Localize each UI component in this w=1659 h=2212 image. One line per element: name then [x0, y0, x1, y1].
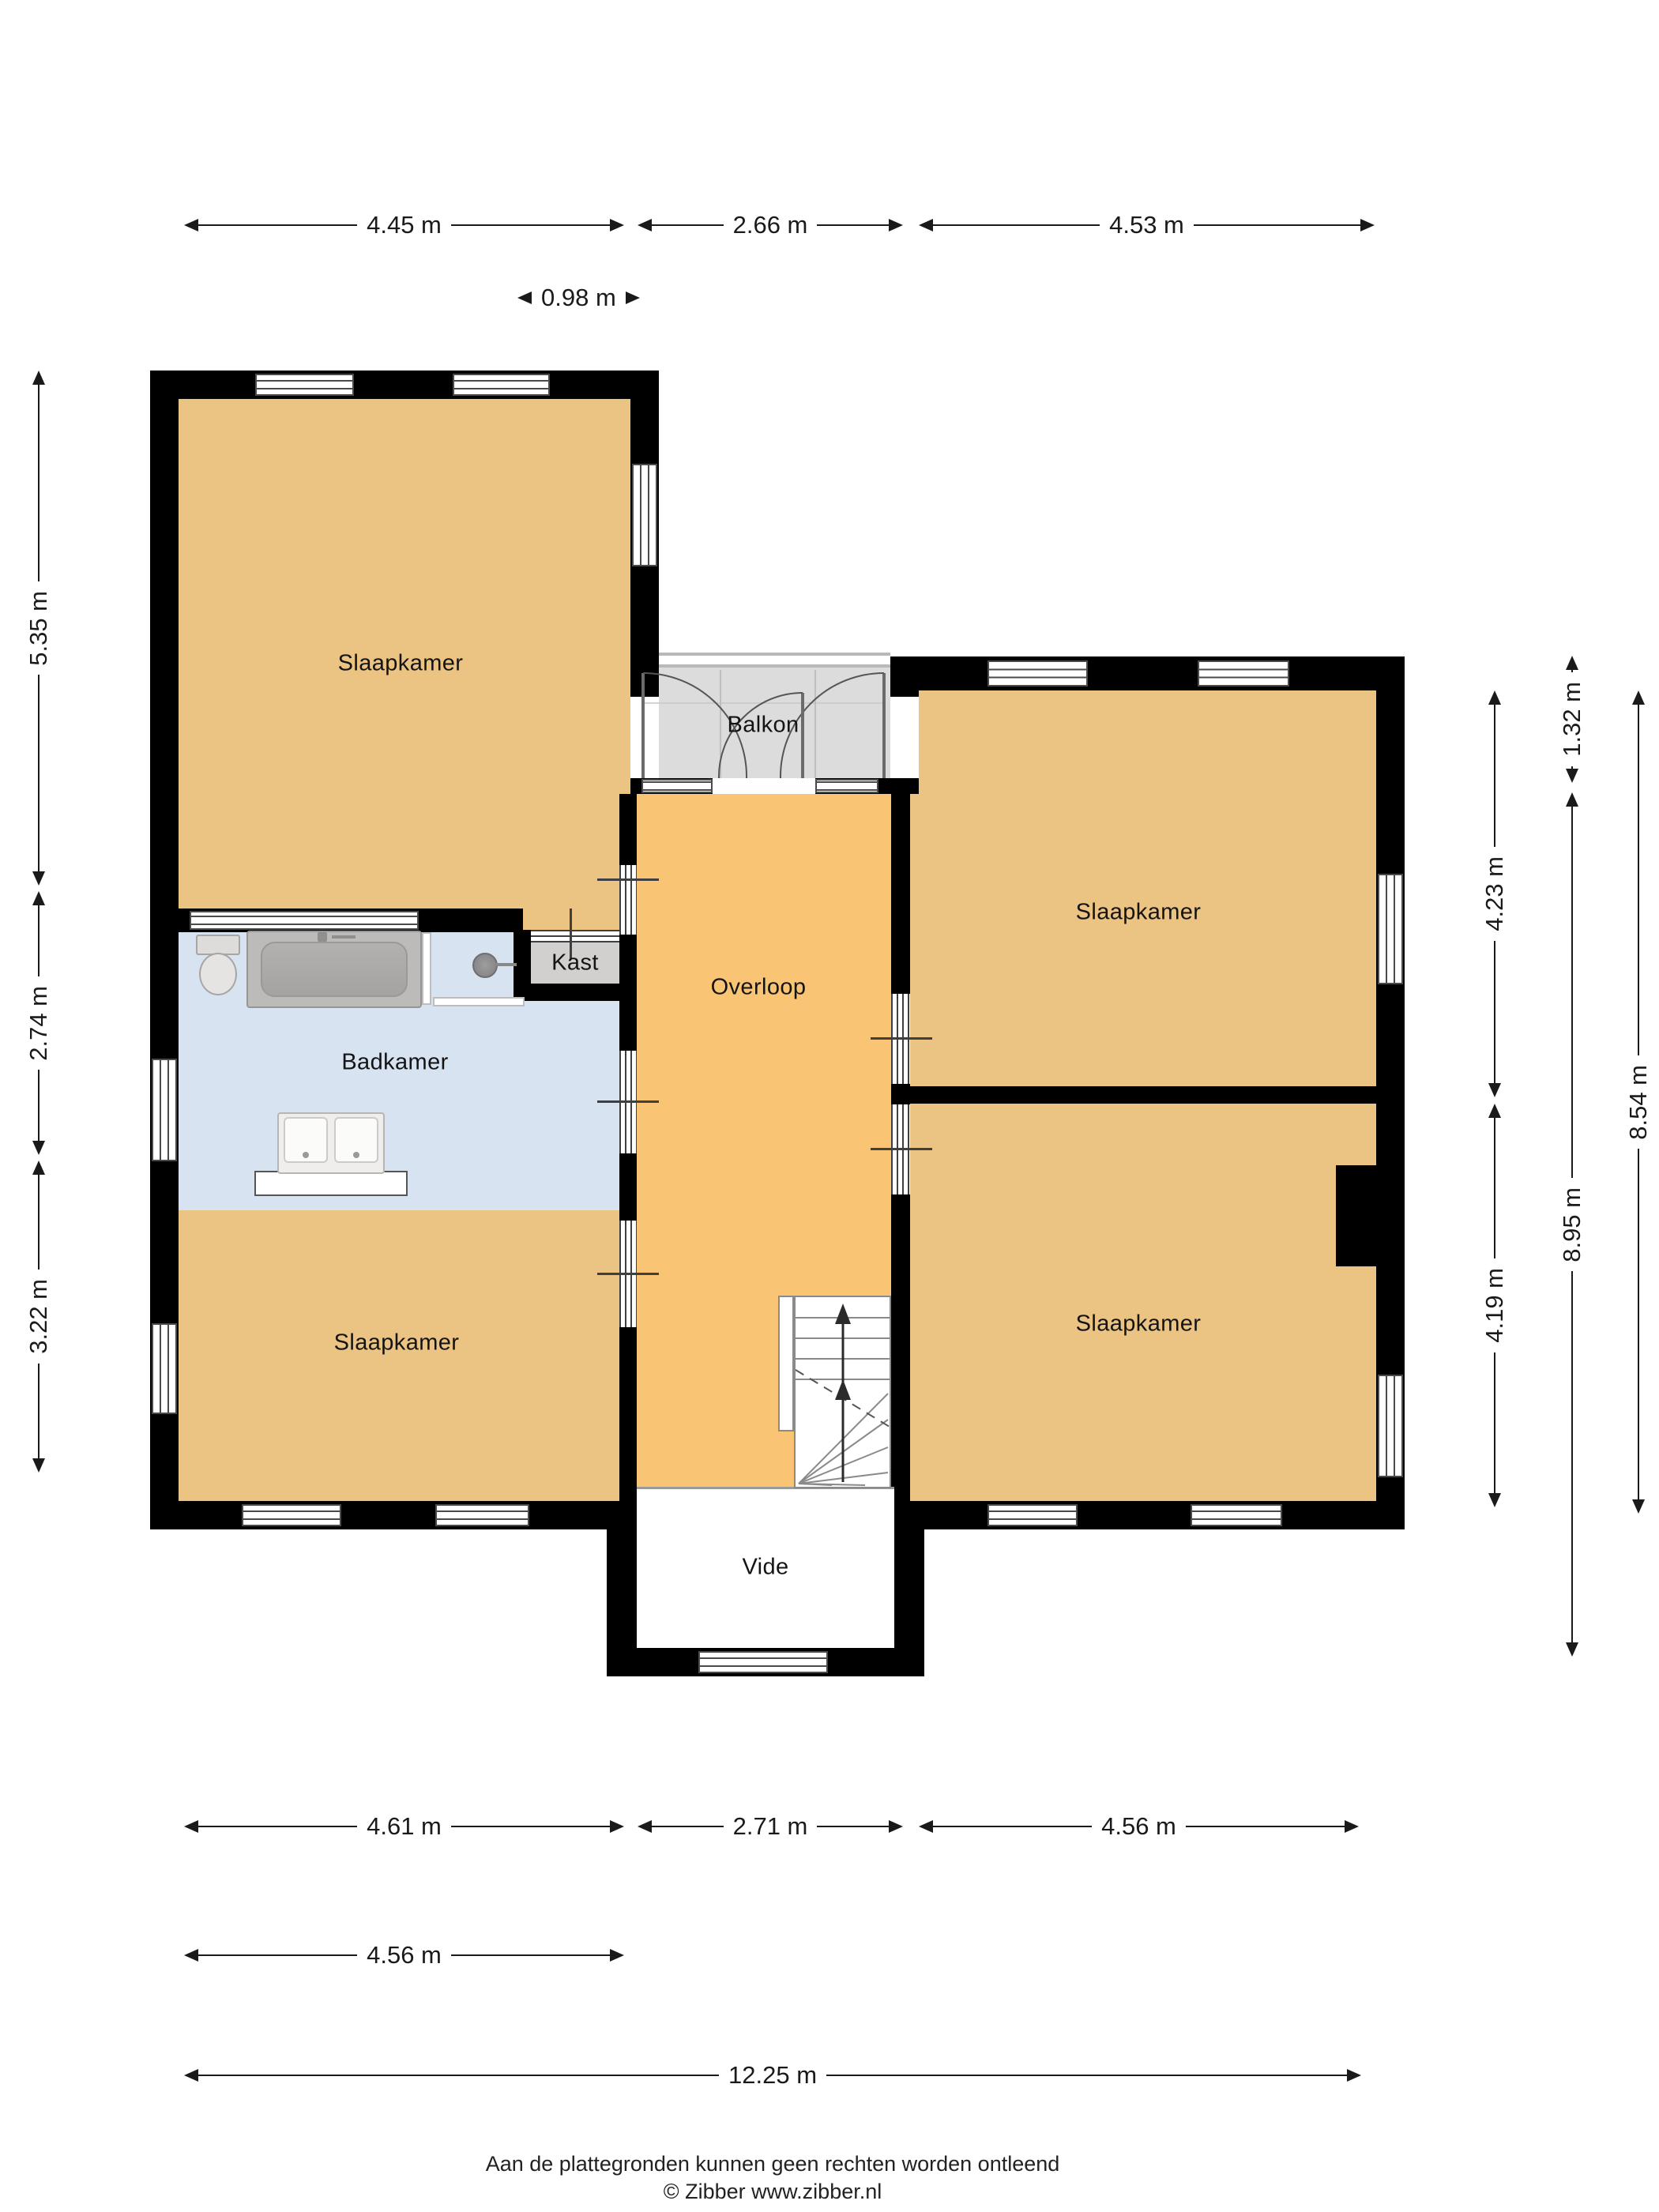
- bathtub-icon: [261, 942, 408, 997]
- arrow-icon: [1566, 1642, 1578, 1657]
- dimension-label: 4.19 m: [1480, 1258, 1509, 1352]
- window: [255, 374, 354, 396]
- arrow-icon: [1566, 656, 1578, 670]
- window: [152, 1323, 177, 1414]
- arrow-icon: [1488, 1104, 1501, 1118]
- arrow-icon: [889, 1820, 903, 1833]
- door-slaapkamer-topleft: [619, 865, 637, 935]
- arrow-icon: [32, 891, 45, 905]
- dimension: 4.61 m: [184, 1813, 624, 1840]
- dimension: 2.71 m: [638, 1813, 903, 1840]
- window: [190, 911, 419, 930]
- arrow-icon: [610, 219, 624, 231]
- room-slaapkamer-topright: [908, 690, 1376, 1104]
- arrow-icon: [1488, 1493, 1501, 1507]
- window: [1378, 874, 1403, 984]
- room-label: Slaapkamer: [1076, 900, 1202, 926]
- room-label: Kast: [551, 950, 599, 976]
- dimension-label: 4.56 m: [1092, 1812, 1186, 1841]
- arrow-icon: [610, 1820, 624, 1833]
- room-label: Slaapkamer: [334, 1330, 460, 1356]
- room-slaapkamer-bottomright: [908, 1104, 1376, 1501]
- arrow-icon: [32, 371, 45, 385]
- dimension-label: 8.54 m: [1624, 1055, 1653, 1149]
- window: [1198, 660, 1289, 687]
- arrow-icon: [32, 871, 45, 886]
- footer-copyright: © Zibber www.zibber.nl: [184, 2178, 1361, 2206]
- dimension: 1.32 m: [1559, 656, 1586, 783]
- door-kast: [531, 930, 619, 942]
- dimension: 5.35 m: [25, 371, 52, 886]
- arrow-icon: [32, 1141, 45, 1155]
- footer-disclaimer: Aan de plattegronden kunnen geen rechten…: [184, 2150, 1361, 2178]
- arrow-icon: [1632, 690, 1645, 705]
- window: [242, 1504, 341, 1526]
- arrow-icon: [638, 1820, 652, 1833]
- dimension-label: 12.25 m: [719, 2061, 826, 2090]
- wall: [513, 984, 637, 1001]
- dimension-label: 8.95 m: [1558, 1178, 1586, 1272]
- window: [698, 1651, 828, 1673]
- arrow-icon: [184, 1949, 198, 1962]
- dimension: 12.25 m: [184, 2062, 1361, 2089]
- arrow-icon: [517, 292, 532, 304]
- arrow-icon: [184, 1820, 198, 1833]
- arrow-icon: [1488, 1083, 1501, 1097]
- dimension: 4.56 m: [919, 1813, 1359, 1840]
- wall: [890, 656, 1405, 690]
- window: [435, 1504, 529, 1526]
- floorplan-page: Slaapkamer Balkon Slaapkamer Kast Badkam…: [0, 0, 1659, 2212]
- stairs-icon: [796, 1297, 890, 1487]
- shower-icon: [472, 953, 498, 978]
- arrow-icon: [1347, 2069, 1361, 2082]
- dimension: 8.54 m: [1625, 690, 1652, 1514]
- arrow-icon: [1360, 219, 1375, 231]
- dimension-label: 4.45 m: [357, 211, 451, 239]
- dimension: 4.53 m: [919, 212, 1375, 239]
- door-swing-tick: [871, 1037, 932, 1040]
- staircase: [794, 1296, 891, 1488]
- washbasin-counter: [254, 1171, 408, 1196]
- dimension-label: 2.74 m: [24, 976, 53, 1070]
- arrow-icon: [919, 1820, 933, 1833]
- room-label: Overloop: [711, 975, 807, 1001]
- window: [632, 464, 657, 566]
- window: [453, 374, 550, 396]
- arrow-icon: [32, 1161, 45, 1175]
- dimension-label: 2.71 m: [724, 1812, 818, 1841]
- wall: [150, 1501, 607, 1529]
- dimension-label: 0.98 m: [532, 284, 626, 312]
- room-label: Badkamer: [341, 1050, 448, 1076]
- dimension: 2.74 m: [25, 891, 52, 1155]
- footer: Aan de plattegronden kunnen geen rechten…: [184, 2150, 1361, 2206]
- shower-icon: [496, 963, 517, 966]
- dimension: 2.66 m: [638, 212, 903, 239]
- arrow-icon: [889, 219, 903, 231]
- faucet-icon: [332, 935, 355, 939]
- shower-screen: [422, 932, 431, 1005]
- window: [1378, 1375, 1403, 1477]
- arrow-icon: [919, 219, 933, 231]
- faucet-icon: [353, 1152, 359, 1158]
- window: [152, 1059, 177, 1161]
- arrow-icon: [626, 292, 640, 304]
- dimension: 4.23 m: [1481, 690, 1508, 1097]
- dimension-label: 4.53 m: [1100, 211, 1194, 239]
- arrow-icon: [1566, 792, 1578, 807]
- arrow-icon: [1345, 1820, 1359, 1833]
- dimension: 8.95 m: [1559, 792, 1586, 1657]
- door-opening: [890, 697, 919, 778]
- window: [1191, 1504, 1282, 1526]
- arrow-icon: [184, 2069, 198, 2082]
- dimension-label: 4.56 m: [357, 1941, 451, 1969]
- room-label: Slaapkamer: [338, 651, 464, 677]
- faucet-icon: [303, 1152, 309, 1158]
- dimension-label: 4.23 m: [1480, 847, 1509, 941]
- door-swing-tick: [871, 1148, 932, 1150]
- dimension-label: 3.22 m: [24, 1270, 53, 1364]
- arrow-icon: [32, 1458, 45, 1473]
- window: [987, 660, 1088, 687]
- dimension: 4.19 m: [1481, 1104, 1508, 1507]
- toilet-icon: [199, 953, 237, 995]
- faucet-icon: [318, 932, 327, 942]
- dimension-label: 1.32 m: [1558, 672, 1586, 766]
- shower-screen: [433, 997, 525, 1006]
- stairs-handrail: [778, 1296, 794, 1431]
- arrow-icon: [1632, 1499, 1645, 1514]
- arrow-icon: [1488, 690, 1501, 705]
- wall: [910, 1086, 1376, 1104]
- arrow-icon: [638, 219, 652, 231]
- dimension-label: 5.35 m: [24, 581, 53, 675]
- window: [987, 1504, 1078, 1526]
- door-swing-tick: [597, 1100, 659, 1103]
- room-label: Slaapkamer: [1076, 1311, 1202, 1337]
- arrow-icon: [610, 1949, 624, 1962]
- dimension-label: 2.66 m: [724, 211, 818, 239]
- room-label: Balkon: [727, 713, 799, 739]
- chimney: [1336, 1165, 1376, 1266]
- arrow-icon: [184, 219, 198, 231]
- dimension: 0.98 m: [517, 284, 633, 311]
- wall: [150, 371, 659, 399]
- arrow-icon: [1566, 769, 1578, 783]
- door-swing-tick: [597, 1273, 659, 1275]
- door-swing-tick: [597, 878, 659, 881]
- room-label: Vide: [742, 1555, 788, 1581]
- dimension-label: 4.61 m: [357, 1812, 451, 1841]
- dimension: 4.56 m: [184, 1942, 624, 1969]
- dimension: 4.45 m: [184, 212, 624, 239]
- dimension: 3.22 m: [25, 1161, 52, 1473]
